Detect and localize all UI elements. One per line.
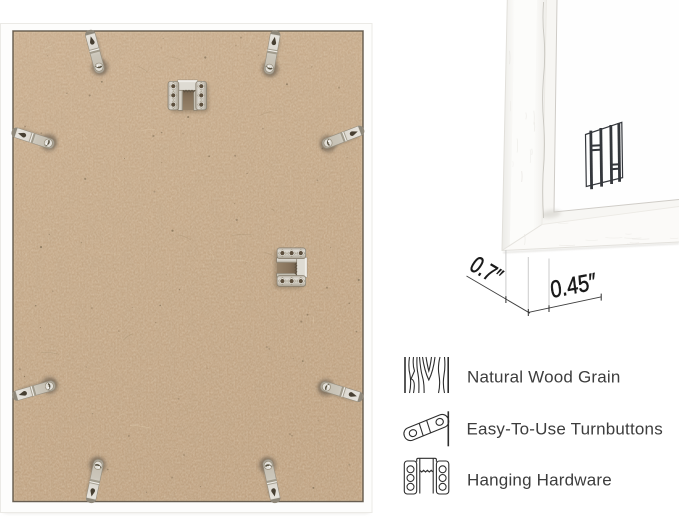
- svg-text:Easy-To-Use Turnbuttons: Easy-To-Use Turnbuttons: [467, 420, 663, 439]
- svg-text:Hanging Hardware: Hanging Hardware: [467, 471, 612, 490]
- svg-text:Natural Wood Grain: Natural Wood Grain: [467, 368, 621, 387]
